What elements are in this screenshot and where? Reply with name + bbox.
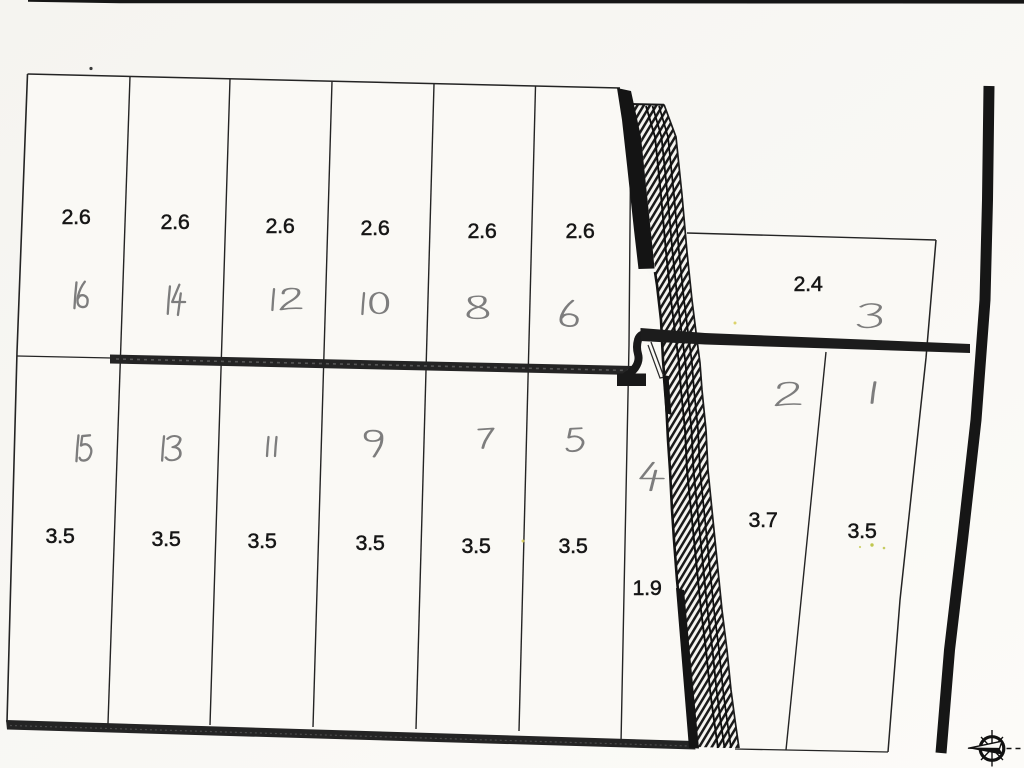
- svg-text:3.5: 3.5: [848, 519, 877, 543]
- svg-text:2.6: 2.6: [468, 219, 497, 243]
- svg-text:2.6: 2.6: [62, 205, 91, 229]
- svg-text:2.6: 2.6: [161, 210, 190, 234]
- svg-text:3.5: 3.5: [46, 524, 75, 548]
- svg-text:3.5: 3.5: [248, 529, 277, 553]
- svg-text:3.5: 3.5: [152, 527, 181, 551]
- svg-text:3.5: 3.5: [356, 531, 385, 555]
- svg-text:2.4: 2.4: [794, 272, 823, 296]
- svg-text:2.6: 2.6: [266, 214, 295, 238]
- svg-text:2.6: 2.6: [566, 219, 595, 243]
- svg-text:3.5: 3.5: [462, 534, 491, 558]
- svg-text:2.6: 2.6: [361, 216, 390, 240]
- svg-text:3.5: 3.5: [559, 534, 588, 558]
- svg-text:1.9: 1.9: [633, 576, 662, 600]
- svg-text:3.7: 3.7: [749, 508, 778, 532]
